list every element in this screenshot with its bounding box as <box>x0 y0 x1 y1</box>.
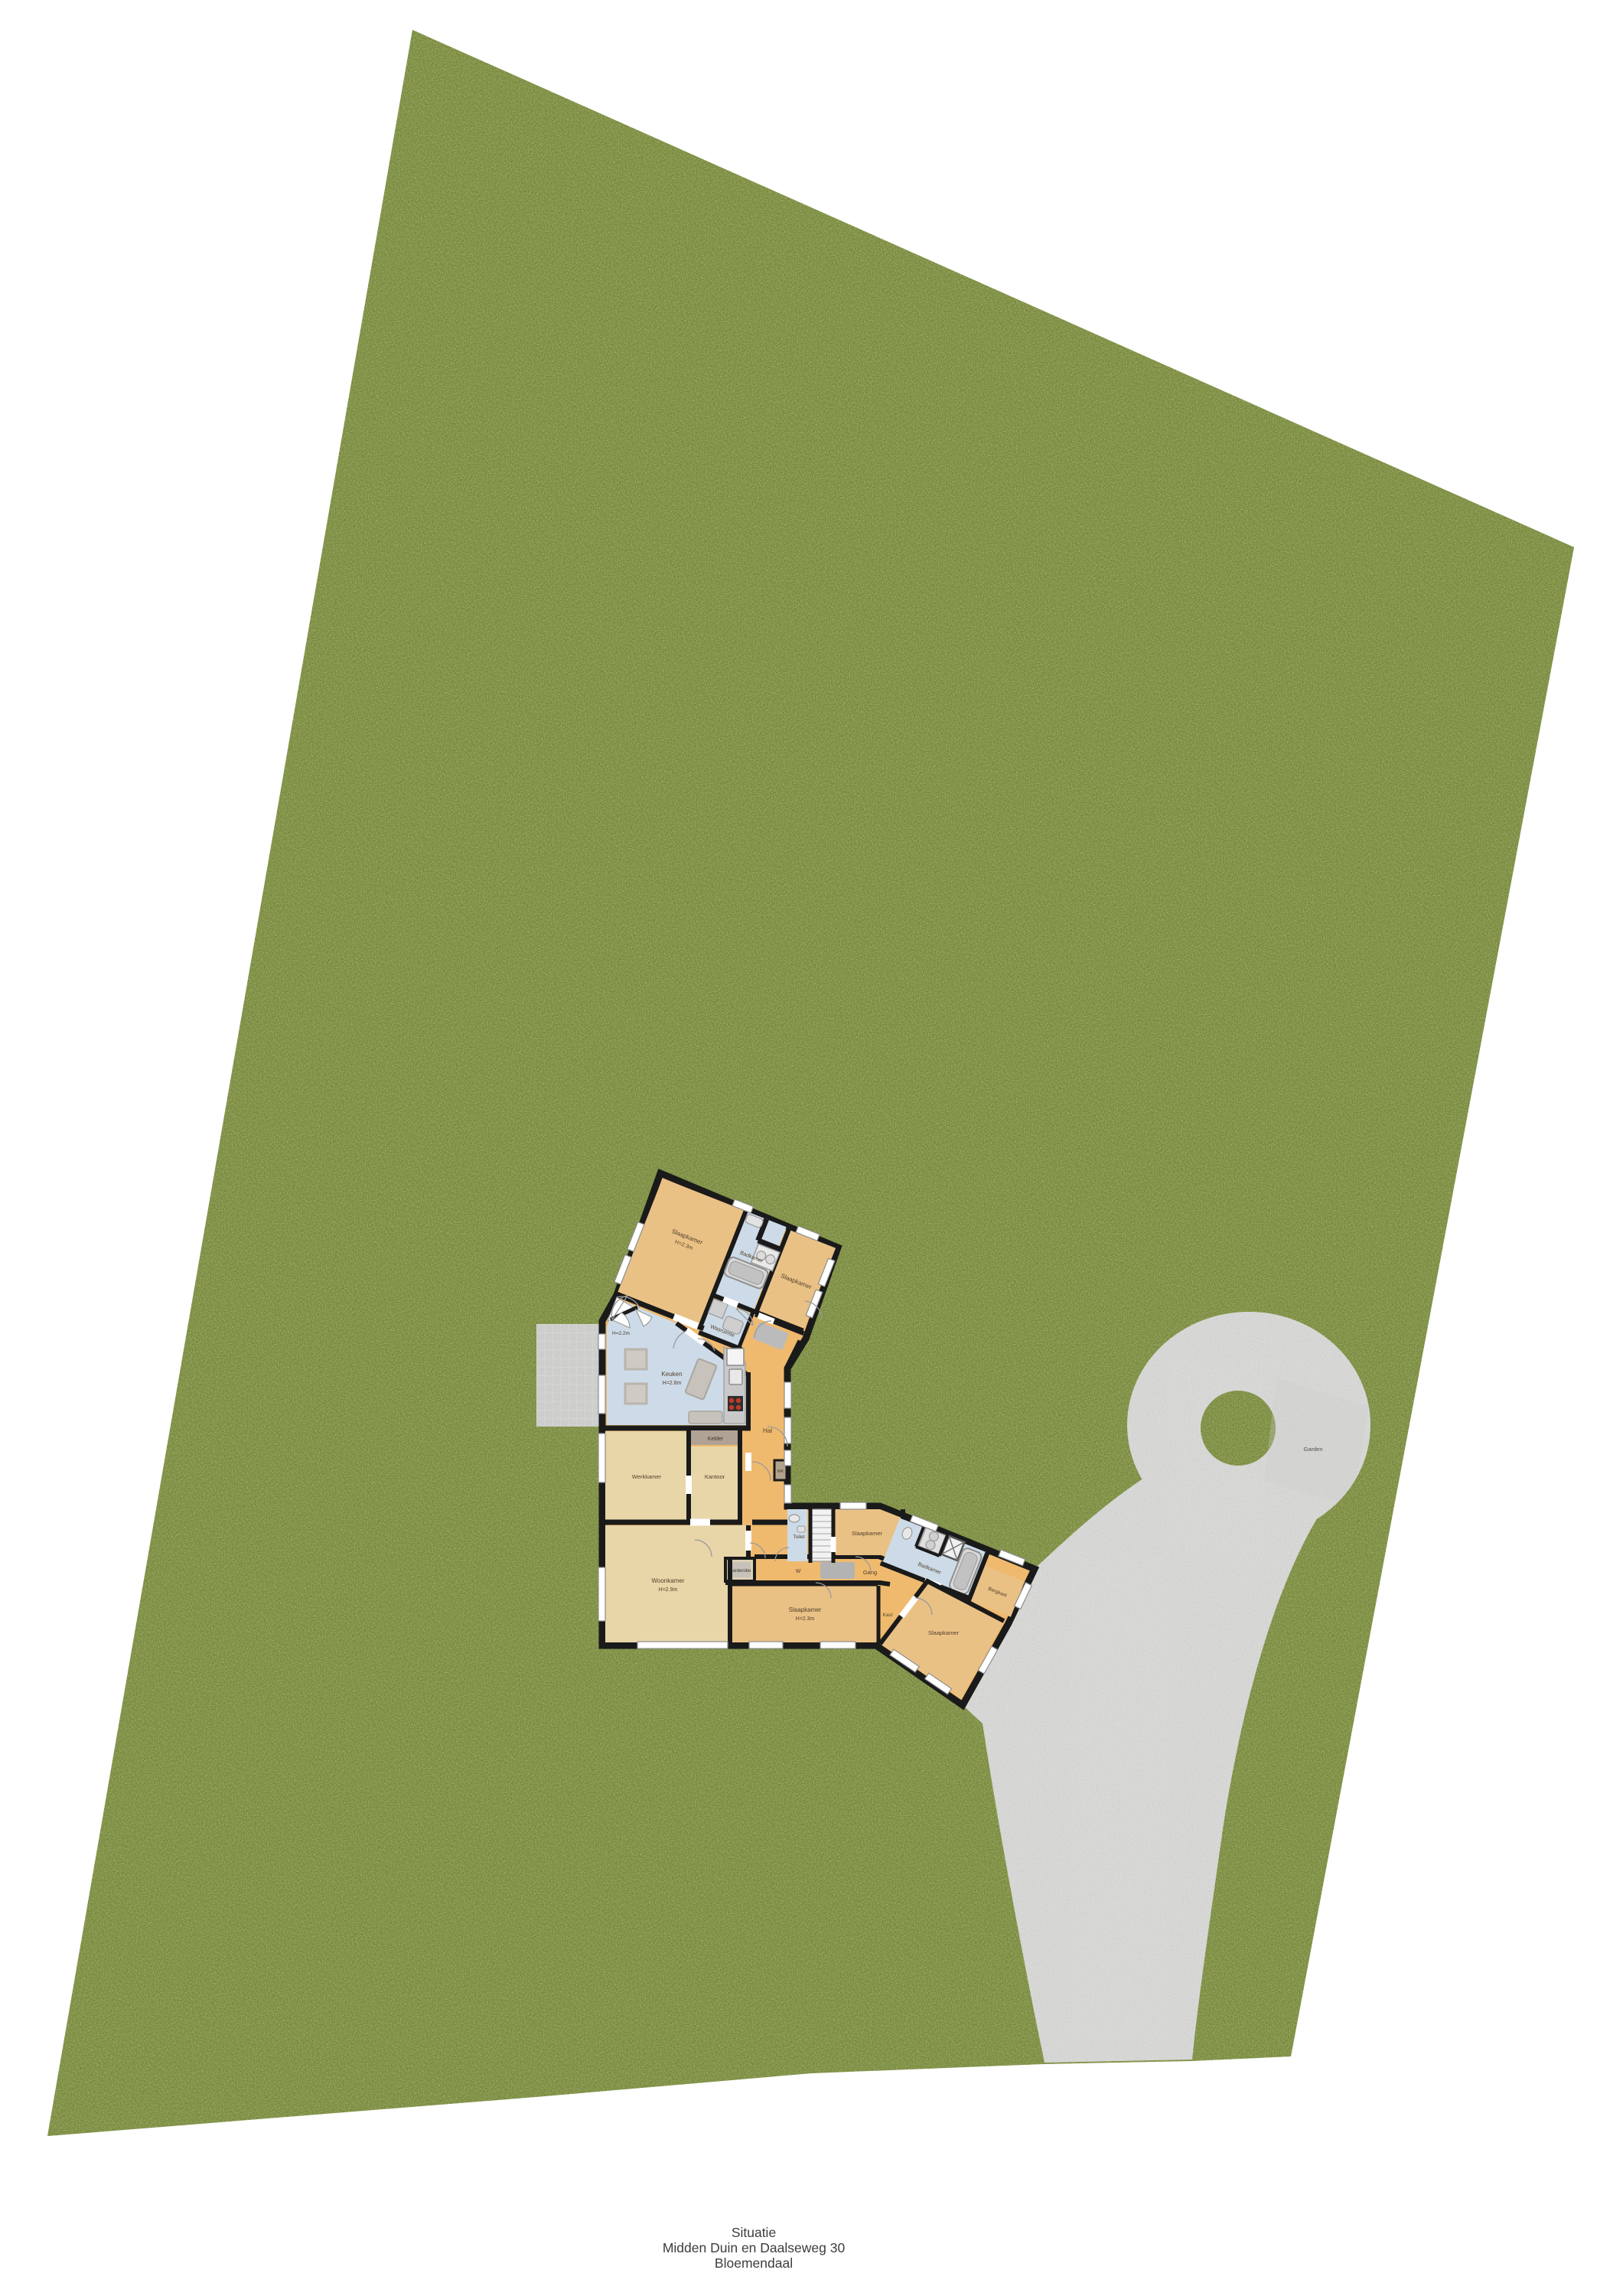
svg-text:Toilet: Toilet <box>793 1534 804 1540</box>
svg-text:Slaapkamer: Slaapkamer <box>852 1530 883 1537</box>
svg-text:H=2.3m: H=2.3m <box>796 1616 815 1622</box>
svg-text:Kantoor: Kantoor <box>705 1473 725 1480</box>
svg-text:Bloemendaal: Bloemendaal <box>715 2255 793 2271</box>
svg-text:Kelder: Kelder <box>708 1437 724 1442</box>
svg-text:Woonkamer: Woonkamer <box>652 1577 685 1584</box>
svg-text:MK: MK <box>777 1469 784 1474</box>
svg-text:Midden Duin en Daalseweg 30: Midden Duin en Daalseweg 30 <box>663 2240 846 2255</box>
svg-text:H=2.2m: H=2.2m <box>612 1331 630 1336</box>
svg-text:Slaapkamer: Slaapkamer <box>789 1606 822 1613</box>
svg-text:Hal: Hal <box>763 1427 772 1434</box>
svg-text:Garden: Garden <box>1303 1446 1322 1453</box>
svg-text:Slaapkamer: Slaapkamer <box>928 1629 960 1636</box>
svg-text:Gang: Gang <box>863 1569 877 1576</box>
svg-text:Garderobe: Garderobe <box>729 1569 751 1574</box>
svg-text:Werkkamer: Werkkamer <box>632 1473 662 1480</box>
svg-text:Kast: Kast <box>882 1613 892 1618</box>
svg-text:Keuken: Keuken <box>661 1371 682 1378</box>
svg-text:Situatie: Situatie <box>732 2225 776 2240</box>
svg-text:W: W <box>796 1569 801 1574</box>
svg-text:H=2.9m: H=2.9m <box>659 1587 678 1593</box>
svg-text:H=2.8m: H=2.8m <box>663 1381 682 1386</box>
